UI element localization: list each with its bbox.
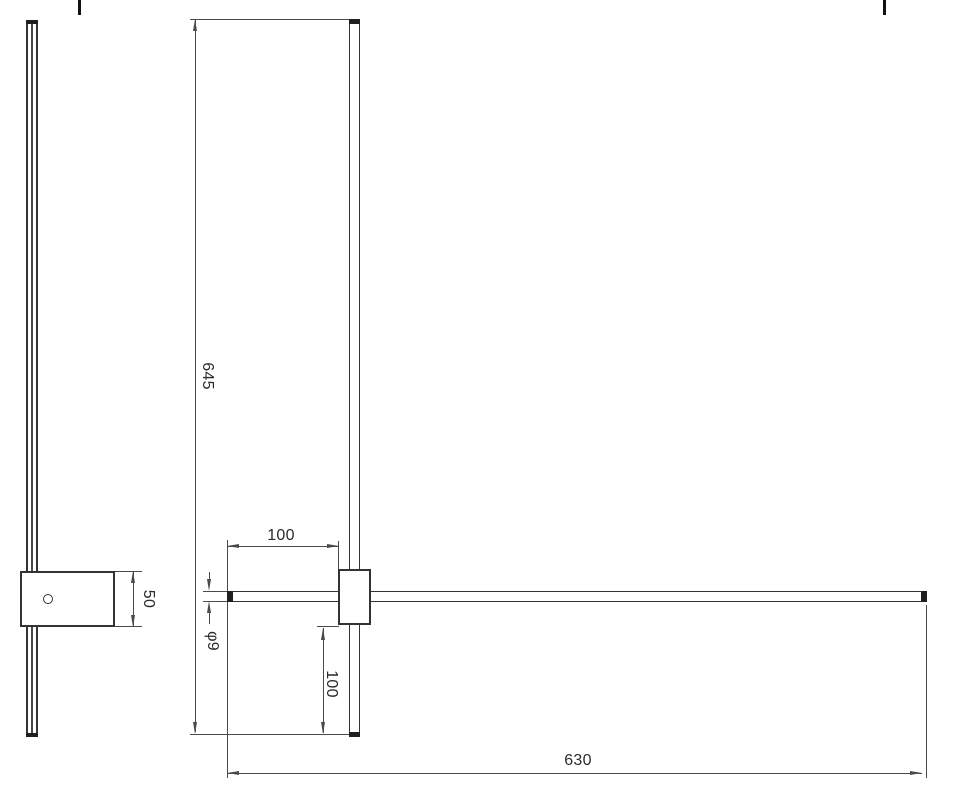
dim-label-bottom-overhang: 100 [323, 670, 339, 698]
dim-label-left-overhang: 100 [267, 528, 295, 544]
side-mounting-plate [20, 571, 115, 627]
side-bar-top-cap [26, 20, 38, 24]
dim50-ext-top [115, 571, 142, 572]
dim630-arrow-left [227, 771, 239, 775]
dimphi9-arrow-up [207, 601, 211, 613]
dim100bot-arrow-down [321, 722, 325, 734]
vertical-bar [349, 19, 360, 737]
dim100top-line [227, 546, 339, 547]
dim-label-tube-diameter: φ9 [204, 631, 220, 651]
screw-hole [43, 594, 53, 604]
dim630-arrow-right [910, 771, 922, 775]
horizontal-bar-left-cap [227, 591, 233, 602]
top-right-tick-mark [883, 0, 886, 15]
dim-label-total-height: 645 [199, 362, 215, 390]
technical-drawing-canvas: 50 645 100 φ9 [0, 0, 953, 806]
dim645-line [195, 20, 196, 732]
dim50-ext-bottom [115, 626, 142, 627]
dim100top-arrow-left [227, 544, 239, 548]
ext-line-bar-left-end [227, 540, 228, 778]
dim50-arrow-up [131, 571, 135, 583]
side-bar-profile [26, 20, 38, 737]
side-bar-bottom-cap [26, 733, 38, 737]
vertical-bar-top-cap [349, 19, 360, 24]
dim630-line [227, 773, 922, 774]
dim645-ext-top [190, 19, 350, 20]
dimphi9-arrow-down [207, 579, 211, 591]
dim645-ext-bottom [190, 734, 356, 735]
dim100top-arrow-right [327, 544, 339, 548]
dim-label-bracket-height: 50 [140, 590, 156, 608]
top-left-tick-mark [78, 0, 81, 15]
dim100bot-arrow-up [321, 628, 325, 640]
dim630-ext-right [926, 605, 927, 778]
dimphi9-tail-bottom [209, 613, 210, 624]
vertical-bar-bottom-cap [349, 732, 360, 737]
dim645-arrow-down [193, 722, 197, 734]
dim-label-total-width: 630 [564, 753, 592, 769]
dim50-arrow-down [131, 615, 135, 627]
dim645-arrow-up [193, 19, 197, 31]
horizontal-bar-right-cap [921, 591, 927, 602]
horizontal-bar [227, 591, 927, 602]
mounting-block [338, 569, 371, 625]
